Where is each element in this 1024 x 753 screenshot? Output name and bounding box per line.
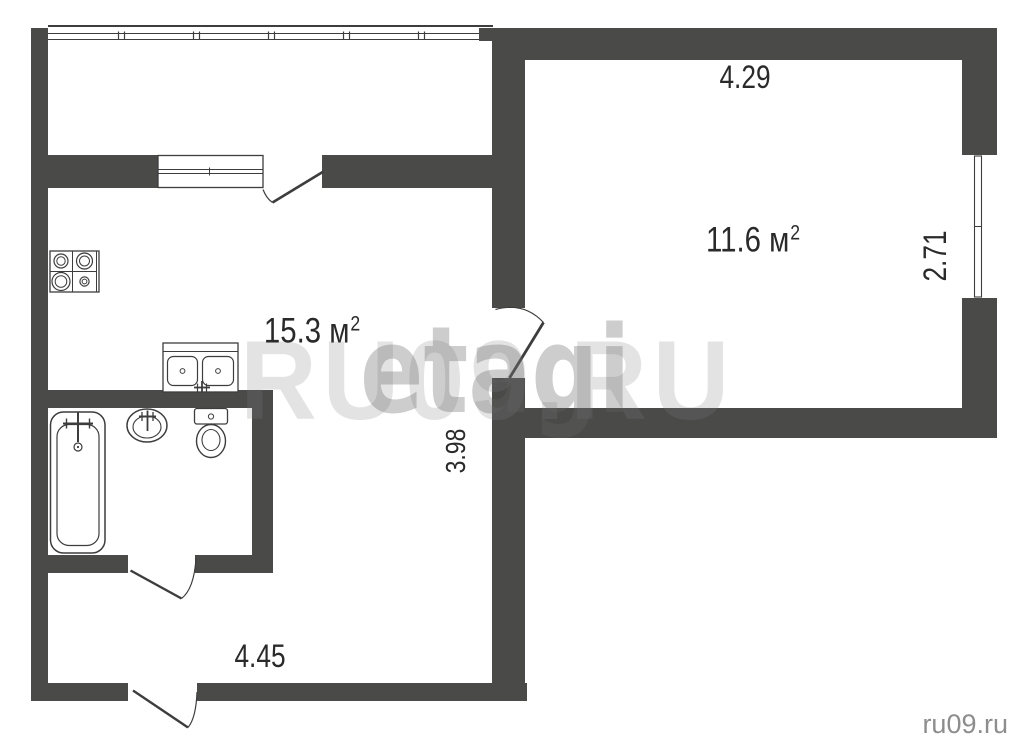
stove-icon <box>50 251 99 292</box>
bathroom-door <box>131 559 197 599</box>
entrance-door <box>133 691 197 728</box>
bathroom-door-arc <box>182 559 197 599</box>
balcony-door-arc <box>263 190 273 203</box>
area-value: 15.3 м <box>264 312 350 351</box>
watermark-agency: еtagi <box>360 312 630 432</box>
balcony-glazing-ticks <box>119 32 425 40</box>
washbasin-icon <box>127 409 167 442</box>
dimension-room-depth-right: 2.71 <box>919 230 951 281</box>
dimension-kitchen-depth-middle: 3.98 <box>442 429 470 474</box>
kitchen-sink-icon <box>163 343 238 393</box>
bathtub-icon <box>51 412 106 553</box>
entrance-door-arc <box>188 692 197 728</box>
entrance-door-leaf <box>133 691 188 728</box>
floor-plan-image: RU09.RU еtagi 15.3 м2 11.6 м2 4.29 2.71 … <box>0 0 1024 753</box>
area-superscript: 2 <box>350 313 360 336</box>
room-window <box>975 156 982 297</box>
area-label-room: 11.6 м2 <box>706 223 800 258</box>
kitchen-window <box>158 156 263 188</box>
toilet-icon <box>195 409 228 458</box>
bathroom-door-leaf <box>131 571 182 599</box>
dimension-hall-width-bottom: 4.45 <box>234 640 285 672</box>
area-value: 11.6 м <box>706 221 789 260</box>
area-label-kitchen-living: 15.3 м2 <box>264 314 360 349</box>
balcony-door <box>263 172 324 203</box>
site-url-label: ru09.ru <box>922 709 1008 740</box>
balcony-door-leaf <box>273 172 324 203</box>
area-superscript: 2 <box>790 222 800 245</box>
dimension-room-width-top: 4.29 <box>719 61 770 93</box>
